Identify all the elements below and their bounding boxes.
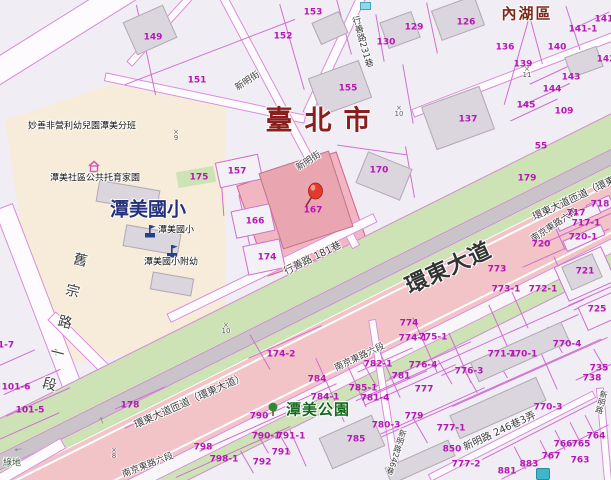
parcel-number-label: 126 — [457, 19, 476, 28]
parcel-number-label: 145 — [517, 102, 536, 111]
building-footprint — [355, 151, 412, 201]
parcel-number-label: 725 — [588, 306, 607, 315]
parcel-number-label: 777-2 — [452, 461, 481, 470]
elevation-marker: × 11 — [523, 66, 532, 78]
parcel-number-label: 767 — [542, 453, 561, 462]
parcel-number-label: 781 — [392, 373, 411, 382]
one-way-arrow-icon: → — [14, 443, 23, 453]
parcel-number-label: 721 — [576, 268, 595, 277]
parcel-number-label: 151 — [188, 77, 207, 86]
parcel-number-label: 153 — [304, 9, 323, 18]
elevation-marker: × 8 — [111, 447, 117, 459]
elevation-marker: × 10 — [222, 322, 231, 334]
parcel-number-label: 174-2 — [267, 351, 296, 360]
parcel-number-label: 785-1 — [349, 385, 378, 394]
school-flag-icon — [144, 224, 156, 238]
parcel-number-label: 130 — [377, 39, 396, 48]
parcel-number-label: 170 — [370, 167, 389, 176]
poi-label: 潭美社區公共托育家園 — [50, 175, 140, 184]
parcel-number-label: 141 — [595, 16, 611, 25]
parcel-number-label: 735 — [590, 365, 609, 374]
poi-label: 潭美國小附幼 — [144, 259, 198, 268]
parcel-number-label: 167 — [304, 207, 323, 216]
parcel-number-label: 717 — [567, 210, 586, 219]
parcel-number-label: 717-1 — [572, 220, 601, 229]
parcel-number-label: 141-1 — [569, 26, 598, 35]
parcel-number-label: 792 — [253, 459, 272, 468]
parcel-number-label: 720-1 — [569, 234, 598, 243]
parcel-number-label: 101-6 — [2, 384, 31, 393]
parcel-number-label: 770-3 — [534, 404, 563, 413]
parcel-number-label: 798 — [194, 444, 213, 453]
parcel-number-label: 179 — [518, 175, 537, 184]
parcel-number-label: 144 — [543, 86, 562, 95]
parcel-number-label: 883 — [520, 461, 539, 470]
poi-label: 潭美國小 — [158, 227, 194, 236]
elevation-marker: × 10 — [395, 105, 404, 117]
road-name-label: 新明街 — [234, 71, 262, 93]
house-icon — [87, 160, 101, 173]
parcel-number-label: 129 — [405, 24, 424, 33]
poi-label: 妙善非營利幼兒園潭美分班 — [28, 123, 136, 132]
cyan-water-icon — [360, 2, 371, 10]
parcel-number-label: 776-3 — [455, 368, 484, 377]
parcel-number-label: 738 — [583, 375, 602, 384]
parcel-number-label: 157 — [228, 168, 247, 177]
parcel-number-label: 784 — [308, 376, 327, 385]
parcel-number-label: 109 — [555, 108, 574, 117]
parcel-number-label: 774 — [400, 320, 419, 329]
parcel-number-label: 798-1 — [210, 456, 239, 465]
area-label: 潭美國小 — [110, 201, 186, 220]
parcel-number-label: 850 — [443, 446, 462, 455]
parcel-number-label: 137 — [459, 116, 478, 125]
school-flag-icon — [166, 244, 178, 258]
parcel-number-label: 779 — [405, 413, 424, 422]
parcel-number-label: 136 — [496, 44, 515, 53]
map-canvas[interactable]: →→→ 新明街新明街行善路231巷行善路 181巷舊宗路一段環東大道環東大道匝道… — [0, 0, 611, 480]
parcel-number-label: 718 — [591, 201, 610, 210]
parcel-number-label: 765 — [572, 441, 591, 450]
parcel-number-label: 773-1 — [492, 286, 521, 295]
parcel-number-label: 775-1 — [419, 334, 448, 343]
area-label: 臺北市 — [266, 108, 383, 135]
parcel-boundary-line — [279, 4, 304, 90]
parcel-number-label: 152 — [274, 33, 293, 42]
parcel-number-label: 770-1 — [509, 351, 538, 360]
parcel-number-label: 766 — [554, 441, 573, 450]
parcel-boundary-line — [0, 349, 35, 370]
elevation-marker: × 9 — [173, 129, 179, 141]
parcel-number-label: 773 — [488, 266, 507, 275]
area-label: 潭美公園 — [286, 403, 350, 418]
parcel-number-label: 791-1 — [277, 433, 306, 442]
parcel-number-label: 790 — [250, 413, 269, 422]
area-label: 綠地 — [3, 460, 21, 469]
parcel-number-label: 772-1 — [529, 286, 558, 295]
parcel-number-label: 178 — [121, 402, 140, 411]
tree-icon — [267, 402, 279, 417]
parcel-number-label: 166 — [246, 218, 265, 227]
parcel-number-label: 1-7 — [0, 342, 14, 351]
parcel-number-label: 770-4 — [553, 341, 582, 350]
parcel-number-label: 140 — [548, 44, 567, 53]
teal-facility-icon — [536, 468, 550, 480]
parcel-number-label: 149 — [144, 34, 163, 43]
parcel-number-label: 143 — [562, 74, 581, 83]
parcel-boundary-line — [529, 16, 543, 65]
parcel-number-label: 763 — [571, 457, 590, 466]
parcel-number-label: 720 — [532, 241, 551, 250]
parcel-number-label: 881 — [498, 468, 517, 477]
parcel-number-label: 155 — [339, 85, 358, 94]
parcel-number-label: 142 — [597, 56, 611, 65]
parcel-number-label: 782-1 — [364, 361, 393, 370]
red-pushpin-icon[interactable] — [302, 182, 324, 208]
parcel-number-label: 174 — [258, 254, 277, 263]
parcel-number-label: 764 — [587, 433, 606, 442]
parcel-number-label: 791 — [272, 449, 291, 458]
parcel-number-label: 785 — [347, 436, 366, 445]
parcel-number-label: 175 — [190, 174, 209, 183]
parcel-number-label: 777-1 — [437, 425, 466, 434]
area-label: 內湖區 — [501, 7, 552, 22]
parcel-number-label: 101-5 — [16, 407, 45, 416]
parcel-number-label: 777 — [415, 386, 434, 395]
parcel-number-label: 55 — [535, 143, 548, 152]
parcel-number-label: 781-4 — [361, 395, 390, 404]
parcel-number-label: 776-4 — [409, 362, 438, 371]
parcel-number-label: 780-3 — [372, 422, 401, 431]
parcel-boundary-line — [402, 64, 413, 123]
